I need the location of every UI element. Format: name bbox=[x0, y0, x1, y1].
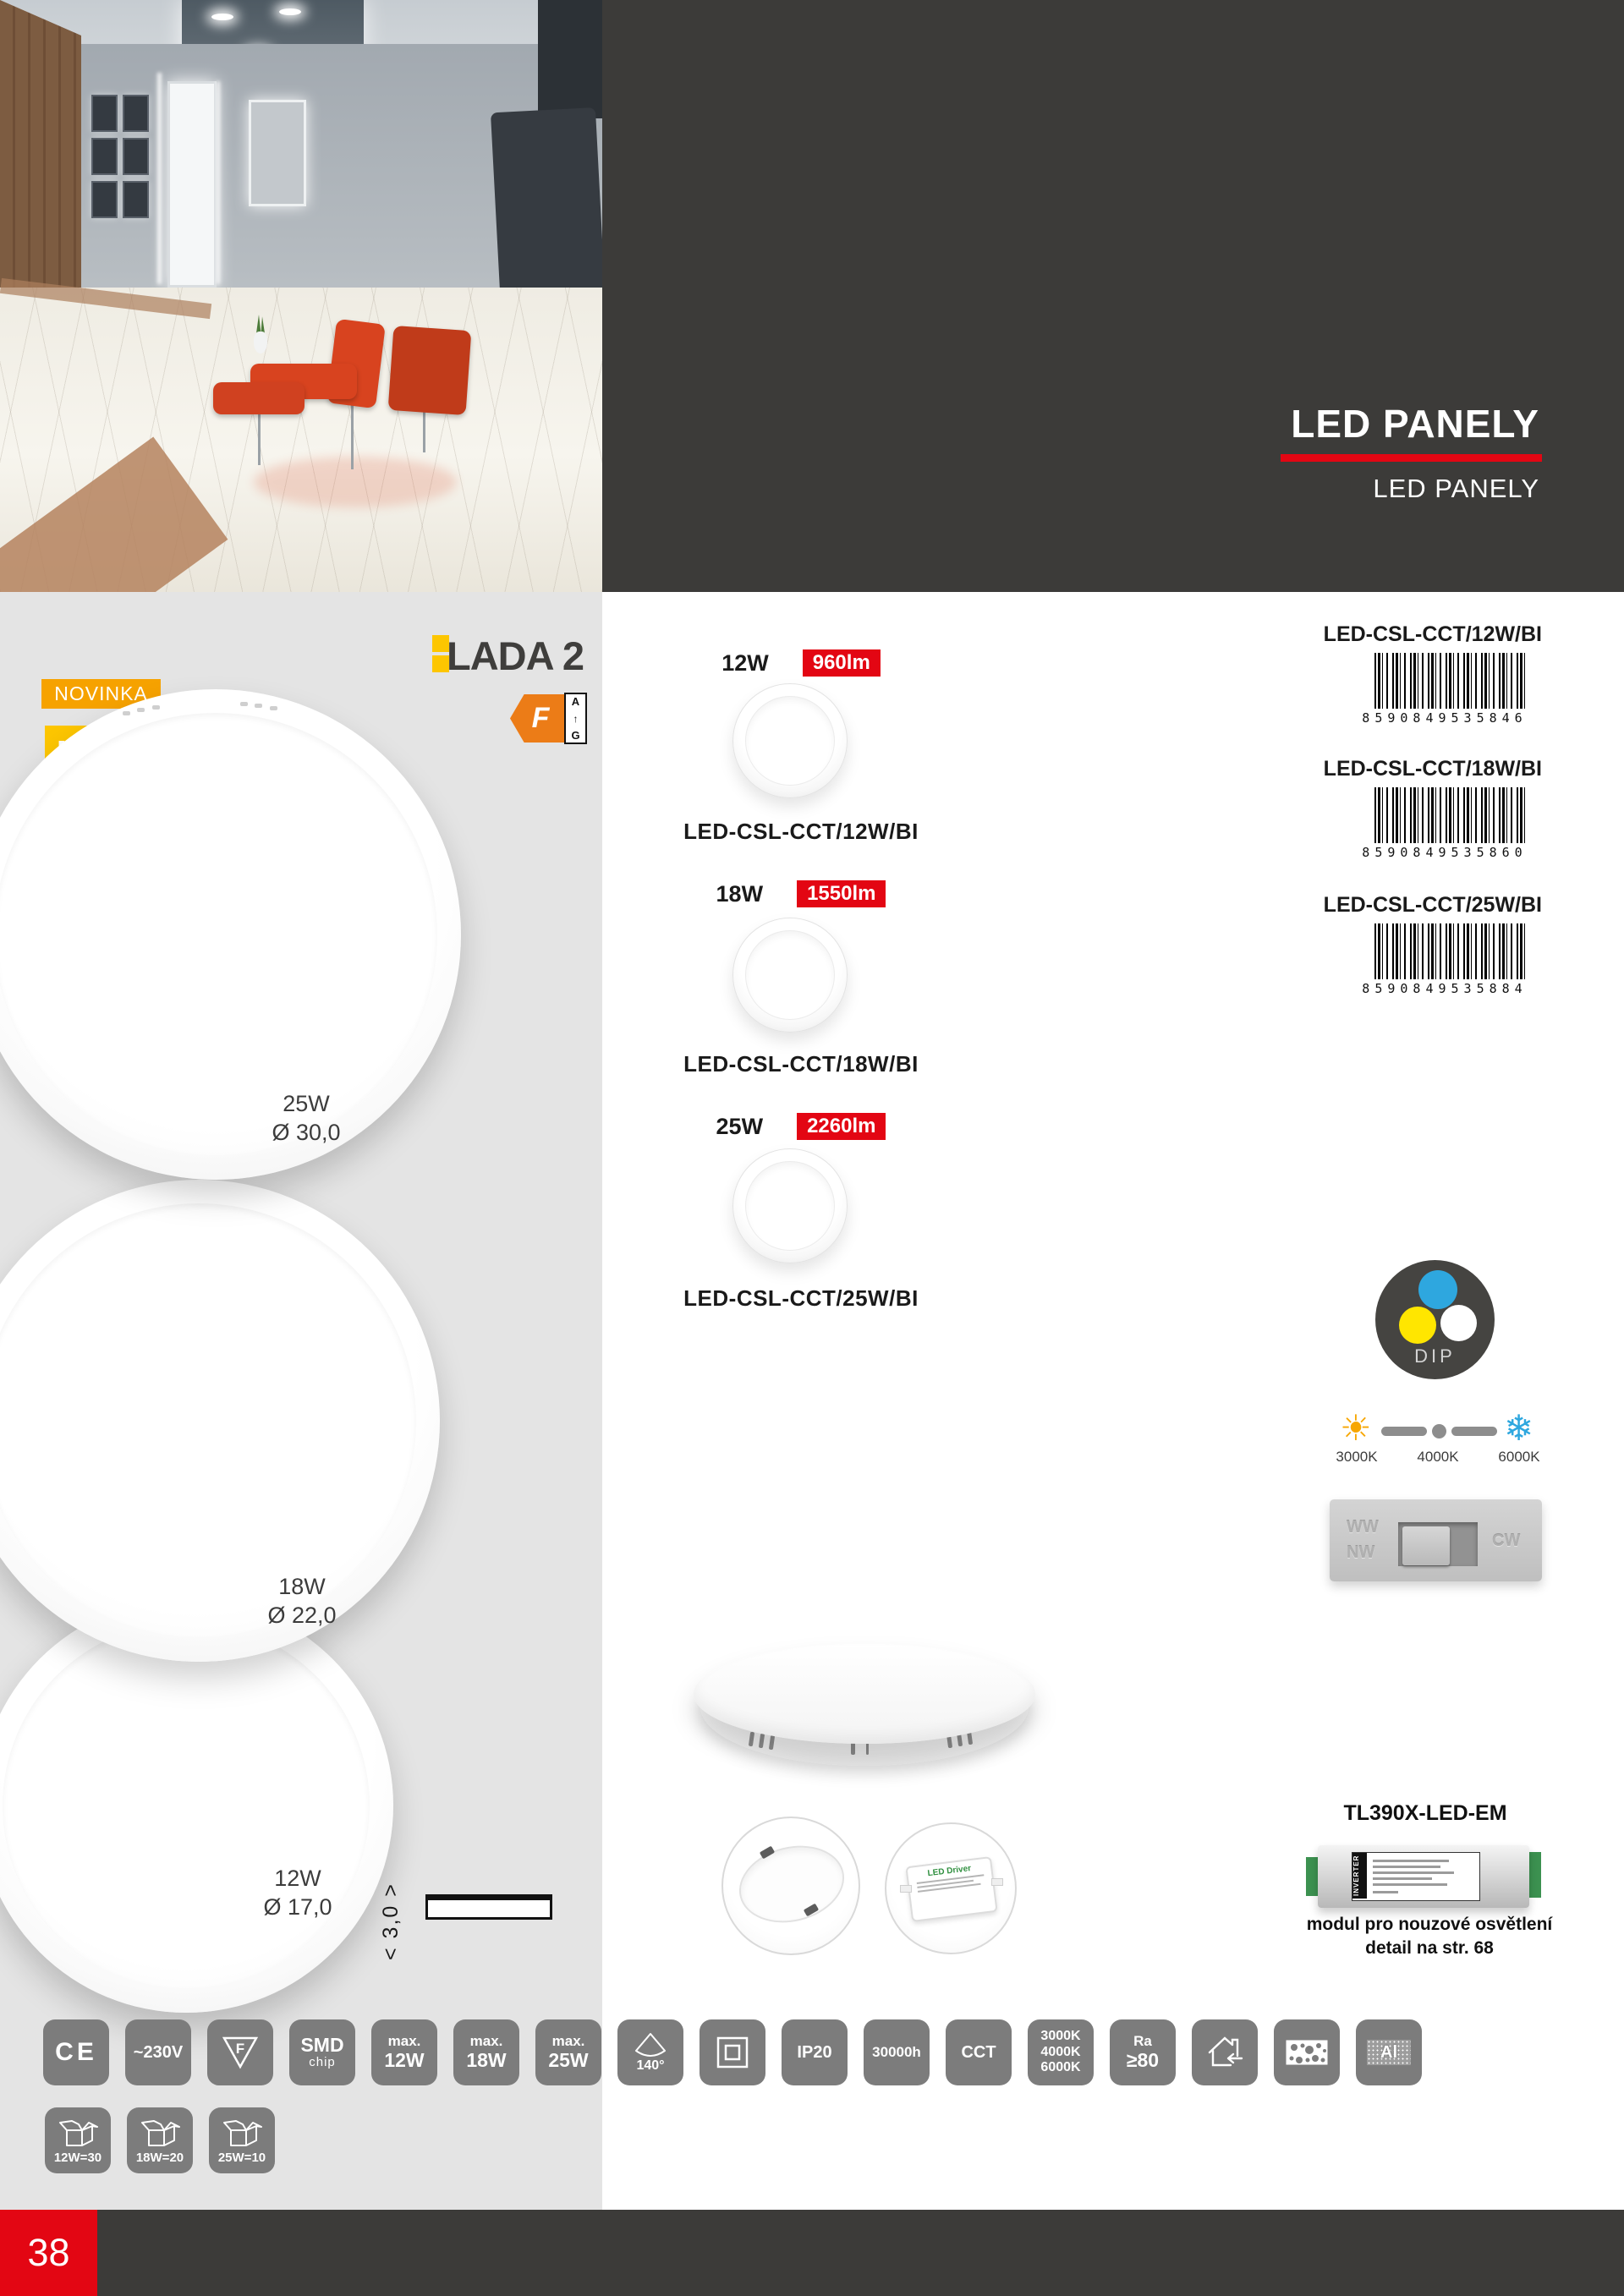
icon-text: CCT bbox=[961, 2043, 996, 2063]
dip-white-dot bbox=[1440, 1305, 1477, 1341]
photo-vase bbox=[254, 332, 267, 353]
variant-photo-18w bbox=[732, 918, 848, 1033]
energy-label: F A ↑ G bbox=[510, 690, 588, 747]
barcode-bars bbox=[1374, 787, 1525, 843]
panel-diameter: Ø 30,0 bbox=[222, 1119, 391, 1148]
interior-photo bbox=[0, 0, 602, 592]
icon-text: 3000K bbox=[1040, 2029, 1080, 2045]
energy-class-arrow: F bbox=[510, 694, 564, 743]
variant-watt: 18W bbox=[716, 881, 764, 907]
photo-spotlight bbox=[279, 8, 301, 15]
series-bullet bbox=[432, 635, 449, 652]
photo-picture-frame bbox=[123, 181, 149, 218]
surface-panel-top bbox=[694, 1644, 1035, 1744]
panel-face bbox=[745, 1161, 835, 1251]
icon-text: 25W=10 bbox=[218, 2151, 266, 2165]
variant-row-12w: 12W 960lm bbox=[602, 649, 1000, 677]
page-subtitle: LED PANELY bbox=[1373, 474, 1539, 504]
energy-scale: A ↑ G bbox=[564, 693, 587, 744]
vent-slot bbox=[749, 1732, 754, 1747]
packaging-12w-icon: 12W=30 bbox=[45, 2107, 111, 2173]
packaging-icons-row: 12W=3018W=2025W=10 bbox=[45, 2107, 275, 2173]
panel-back bbox=[731, 1835, 853, 1933]
cct-scale-dash bbox=[1451, 1427, 1497, 1436]
page-title: LED PANELY bbox=[1291, 401, 1539, 447]
series-bullet bbox=[432, 655, 449, 672]
dip-yellow-dot bbox=[1399, 1307, 1436, 1344]
icon-text: chip bbox=[309, 2056, 336, 2070]
icon-text: 12W=30 bbox=[54, 2151, 101, 2165]
emergency-module-photo: INVERTER bbox=[1318, 1845, 1529, 1908]
driver-connector bbox=[900, 1885, 912, 1893]
driver-connector bbox=[991, 1878, 1003, 1886]
ce-mark-icon: CE bbox=[43, 2019, 109, 2085]
energy-scale-bottom: G bbox=[571, 730, 579, 741]
dip-blue-dot bbox=[1418, 1270, 1457, 1309]
barcode-label: LED-CSL-CCT/18W/BI bbox=[1288, 757, 1542, 781]
photo-chair-seat bbox=[213, 382, 304, 414]
icon-text: 4000K bbox=[1040, 2045, 1080, 2061]
dip-badge: DIP bbox=[1375, 1260, 1495, 1379]
ra-icon: Ra≥80 bbox=[1110, 2019, 1176, 2085]
panel-label-12w: 12W Ø 17,0 bbox=[213, 1865, 382, 1922]
label-text-line bbox=[1373, 1891, 1398, 1893]
variant-watt: 25W bbox=[716, 1114, 764, 1140]
icon-text: max. bbox=[470, 2034, 503, 2050]
title-underline bbox=[1281, 454, 1542, 462]
icon-text: SMD bbox=[300, 2035, 343, 2056]
sun-icon: ☀ bbox=[1340, 1407, 1372, 1449]
module-label: INVERTER bbox=[1352, 1852, 1480, 1901]
photo-chair-reflection bbox=[254, 457, 457, 507]
panel-diameter: Ø 17,0 bbox=[213, 1893, 382, 1922]
energy-scale-arrow-icon: ↑ bbox=[573, 714, 579, 724]
icon-text: 18W=20 bbox=[136, 2151, 184, 2165]
icon-text: IP20 bbox=[797, 2043, 831, 2063]
icon-text: max. bbox=[552, 2034, 585, 2050]
label-text-line bbox=[1373, 1860, 1449, 1862]
led-driver: LED Driver bbox=[905, 1856, 997, 1922]
icon-text: ~230V bbox=[134, 2043, 183, 2063]
photo-light-cove bbox=[157, 73, 162, 284]
photo-chair-back bbox=[388, 326, 472, 415]
photo-spotlight bbox=[211, 14, 233, 20]
icon-text: 6000K bbox=[1040, 2060, 1080, 2076]
product-panel: LADA 2 NOVINKA LED F A ↑ G bbox=[0, 592, 602, 2210]
spec-icons-row: CE~230VFSMDchipmax.12Wmax.18Wmax.25W140°… bbox=[43, 2019, 1422, 2085]
label-text-line bbox=[1373, 1871, 1454, 1874]
inverter-label: INVERTER bbox=[1352, 1853, 1367, 1899]
photo-picture-frame bbox=[123, 138, 149, 175]
smd-chip-icon: SMDchip bbox=[289, 2019, 355, 2085]
switch-cw-label: CW bbox=[1492, 1532, 1520, 1551]
label-text-line bbox=[1373, 1877, 1432, 1880]
vent-hole bbox=[270, 706, 277, 710]
switch-knob bbox=[1402, 1526, 1450, 1565]
snowflake-icon: ❄ bbox=[1504, 1407, 1533, 1449]
icon-text: 18W bbox=[466, 2050, 506, 2071]
variant-row-25w: 25W 2260lm bbox=[602, 1113, 1000, 1140]
profile-depth-dimension: < 3,0 > bbox=[379, 1859, 403, 1960]
panel-diameter: Ø 22,0 bbox=[217, 1602, 387, 1630]
temp-label-6000k: 6000K bbox=[1485, 1449, 1553, 1466]
emergency-module-caption: modul pro nouzové osvětlení detail na st… bbox=[1294, 1913, 1565, 1961]
f-luminaire-icon: F bbox=[207, 2019, 273, 2085]
photo-picture-frame bbox=[123, 95, 149, 132]
barcode-ean: 8590849535860 bbox=[1355, 845, 1534, 860]
voltage-icon: ~230V bbox=[125, 2019, 191, 2085]
icon-text: 25W bbox=[548, 2050, 588, 2071]
detail-photo-driver: LED Driver bbox=[885, 1822, 1017, 1954]
temp-label-3000k: 3000K bbox=[1323, 1449, 1391, 1466]
barcode-bars bbox=[1374, 923, 1525, 979]
photo-picture-frame bbox=[91, 181, 118, 218]
panel-label-25w: 25W Ø 30,0 bbox=[222, 1090, 391, 1148]
variant-code-12w: LED-CSL-CCT/12W/BI bbox=[602, 819, 1000, 845]
detail-photo-back bbox=[721, 1817, 860, 1955]
energy-scale-top: A bbox=[572, 696, 579, 707]
switch-nw-label: NW bbox=[1347, 1543, 1374, 1563]
profile-side-view bbox=[425, 1894, 552, 1920]
packaging-25w-icon: 25W=10 bbox=[209, 2107, 275, 2173]
catalog-page: LED PANELY LED PANELY LADA 2 NOVINKA LED… bbox=[0, 0, 1624, 2296]
photo-dark-wall bbox=[538, 0, 602, 118]
variant-code-25w: LED-CSL-CCT/25W/BI bbox=[602, 1285, 1000, 1312]
variant-photo-25w bbox=[732, 1148, 848, 1263]
barcode-label: LED-CSL-CCT/25W/BI bbox=[1288, 893, 1542, 918]
color-temp-icon: 3000K4000K6000K bbox=[1028, 2019, 1094, 2085]
panel-face bbox=[745, 696, 835, 786]
barcode-ean: 8590849535884 bbox=[1355, 981, 1534, 996]
cct-switch-photo: WW NW CW bbox=[1330, 1499, 1542, 1581]
ip20-icon: IP20 bbox=[782, 2019, 848, 2085]
barcode-label: LED-CSL-CCT/12W/BI bbox=[1288, 622, 1542, 647]
icon-text: 30000h bbox=[872, 2044, 921, 2061]
emergency-module-title: TL390X-LED-EM bbox=[1294, 1801, 1556, 1826]
packaging-18w-icon: 18W=20 bbox=[127, 2107, 193, 2173]
mounting-panel-icon bbox=[1274, 2019, 1340, 2085]
cct-scale-dot bbox=[1432, 1424, 1446, 1438]
panel-watt: 18W bbox=[217, 1573, 387, 1602]
barcode-bars bbox=[1374, 653, 1525, 709]
caption-line-2: detail na str. 68 bbox=[1294, 1937, 1565, 1960]
indoor-use-icon bbox=[1192, 2019, 1258, 2085]
class-ii-icon bbox=[700, 2019, 765, 2085]
lumen-badge: 960lm bbox=[803, 649, 881, 677]
variant-photo-12w bbox=[732, 683, 848, 798]
label-text-line bbox=[1373, 1866, 1440, 1868]
panel-face bbox=[3, 1622, 370, 1989]
icon-text: 12W bbox=[384, 2050, 424, 2071]
series-title: LADA 2 bbox=[0, 633, 584, 679]
panel-face bbox=[745, 930, 835, 1020]
icon-text: max. bbox=[388, 2034, 421, 2050]
icon-text: ≥80 bbox=[1127, 2050, 1159, 2071]
max-12w-icon: max.12W bbox=[371, 2019, 437, 2085]
icon-text: CE bbox=[55, 2038, 97, 2067]
footer-bar bbox=[97, 2210, 1624, 2296]
lumen-badge: 2260lm bbox=[797, 1113, 886, 1140]
max-18w-icon: max.18W bbox=[453, 2019, 519, 2085]
variant-row-18w: 18W 1550lm bbox=[602, 880, 1000, 907]
vent-hole bbox=[152, 705, 160, 710]
dip-label: DIP bbox=[1375, 1345, 1495, 1367]
cct-scale-dash bbox=[1381, 1427, 1427, 1436]
switch-ww-label: WW bbox=[1347, 1518, 1379, 1537]
page-number: 38 bbox=[0, 2210, 97, 2296]
vent-slot bbox=[769, 1735, 775, 1751]
caption-line-1: modul pro nouzové osvětlení bbox=[1294, 1913, 1565, 1937]
photo-picture-frame bbox=[91, 138, 118, 175]
variant-code-18w: LED-CSL-CCT/18W/BI bbox=[602, 1051, 1000, 1077]
svg-text:F: F bbox=[236, 2041, 244, 2057]
vent-hole bbox=[123, 711, 130, 715]
photo-door bbox=[167, 81, 217, 288]
vent-hole bbox=[137, 708, 145, 712]
beam-angle-icon: 140° bbox=[617, 2019, 683, 2085]
mesh-texture: Al bbox=[1367, 2040, 1411, 2065]
cct-icon: CCT bbox=[946, 2019, 1012, 2085]
icon-text: Ra bbox=[1133, 2034, 1152, 2050]
vent-hole bbox=[240, 702, 248, 706]
temp-label-4000k: 4000K bbox=[1404, 1449, 1472, 1466]
lumen-badge: 1550lm bbox=[797, 880, 886, 907]
barcode-ean: 8590849535846 bbox=[1355, 710, 1534, 726]
variant-watt: 12W bbox=[721, 650, 769, 677]
vent-slot bbox=[759, 1734, 765, 1749]
aluminum-icon: Al bbox=[1356, 2019, 1422, 2085]
max-25w-icon: max.25W bbox=[535, 2019, 601, 2085]
photo-wall-panel bbox=[249, 100, 306, 206]
icon-text: 140° bbox=[636, 2058, 664, 2074]
vent-hole bbox=[255, 704, 262, 708]
lifetime-icon: 30000h bbox=[864, 2019, 930, 2085]
panel-watt: 25W bbox=[222, 1090, 391, 1119]
panel-label-18w: 18W Ø 22,0 bbox=[217, 1573, 387, 1630]
photo-chair-leg bbox=[351, 397, 354, 469]
panel-watt: 12W bbox=[213, 1865, 382, 1893]
photo-picture-frame bbox=[91, 95, 118, 132]
photo-light-cove bbox=[217, 81, 220, 284]
label-text-line bbox=[1373, 1883, 1447, 1886]
energy-class-letter: F bbox=[525, 702, 550, 735]
